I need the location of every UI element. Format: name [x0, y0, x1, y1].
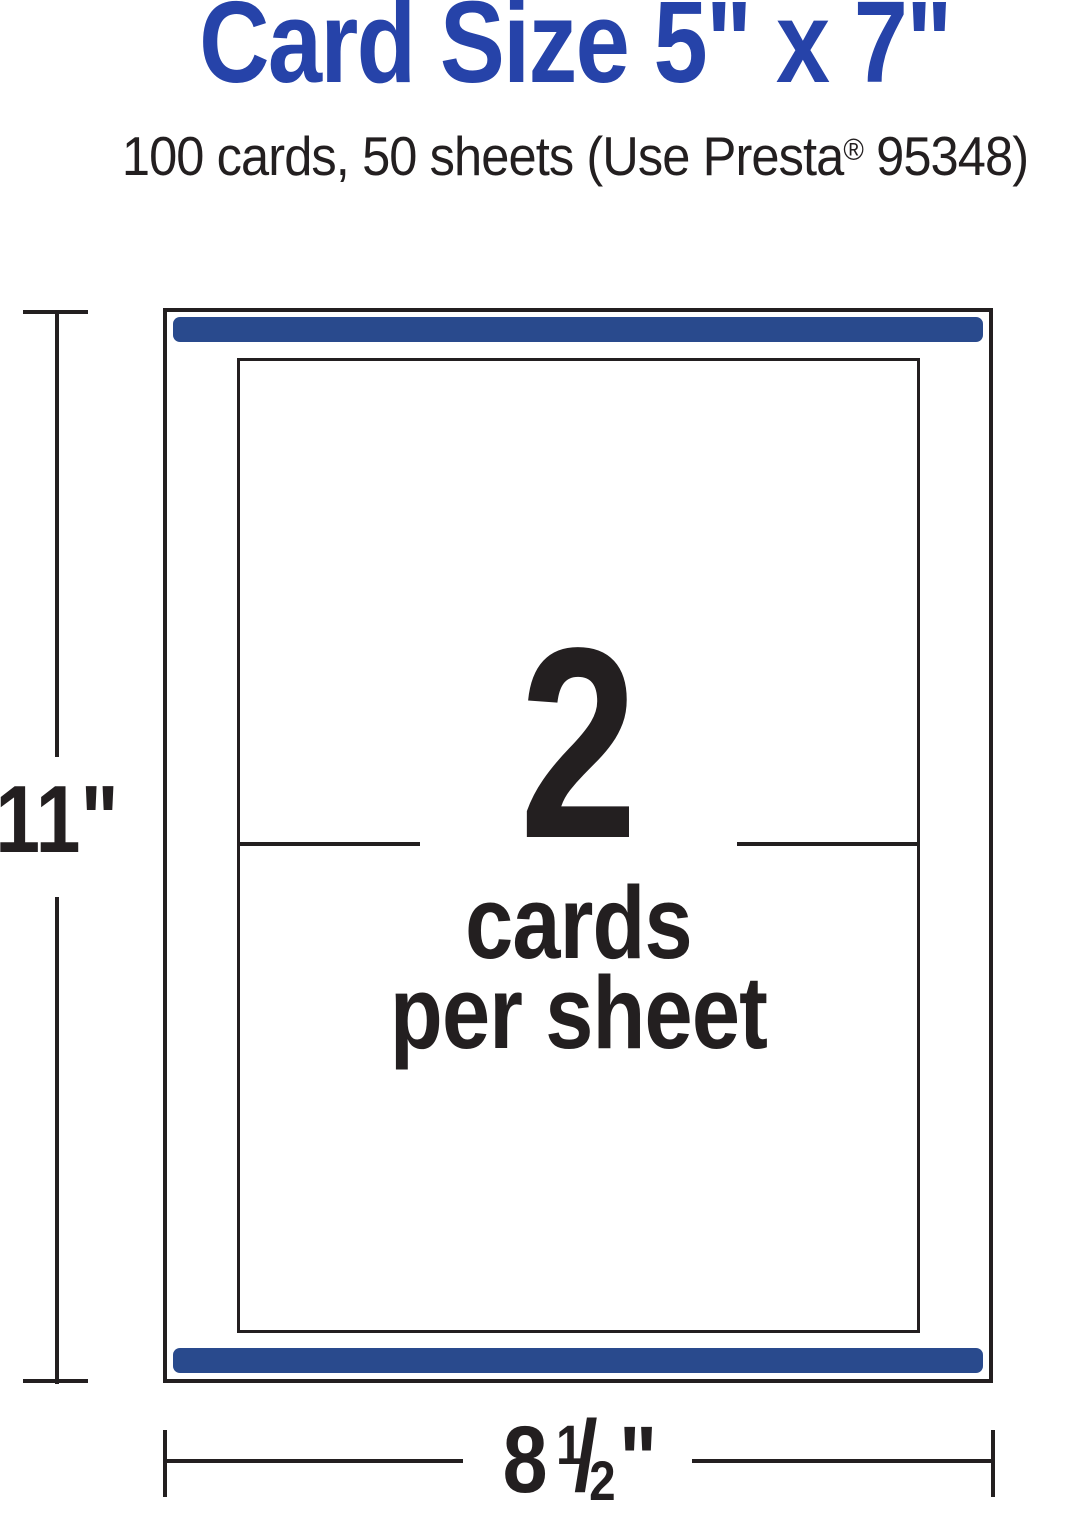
registered-trademark-symbol: ®: [843, 134, 863, 167]
cards-per-sheet-count: 2: [314, 607, 842, 879]
height-dim-line-lower: [55, 897, 59, 1384]
width-dim-right-cap: [991, 1430, 995, 1497]
width-dim-line-left: [163, 1459, 463, 1463]
product-diagram-page: { "colors": { "title_blue": "#2643a9", "…: [0, 0, 1086, 1500]
cards-label-line2: per sheet: [294, 961, 863, 1064]
subtitle-text-part1: 100 cards, 50 sheets (Use Presta: [122, 125, 844, 187]
width-dim-label: 81/2": [453, 1408, 708, 1508]
sheet-outline: 2 cards per sheet: [163, 308, 993, 1383]
width-dim-left-cap: [163, 1430, 167, 1497]
page-title: Card Size 5" x 7": [146, 0, 1004, 100]
subtitle: 100 cards, 50 sheets (Use Presta® 95348): [105, 126, 1045, 187]
subtitle-text-part2: 95348): [863, 125, 1028, 187]
width-dim-line-right: [692, 1459, 995, 1463]
height-dim-label: 11": [0, 772, 128, 868]
height-dim-bottom-cap: [23, 1379, 88, 1383]
width-dim-fraction-denominator: 2: [589, 1449, 615, 1512]
card-area-outline: 2 cards per sheet: [237, 358, 920, 1333]
width-dim-inch-mark: ": [619, 1407, 657, 1513]
width-dim-whole-number: 8: [503, 1407, 548, 1513]
sheet-top-blue-bar: [173, 317, 983, 342]
height-dim-line-upper: [55, 310, 59, 757]
sheet-bottom-blue-bar: [173, 1348, 983, 1373]
